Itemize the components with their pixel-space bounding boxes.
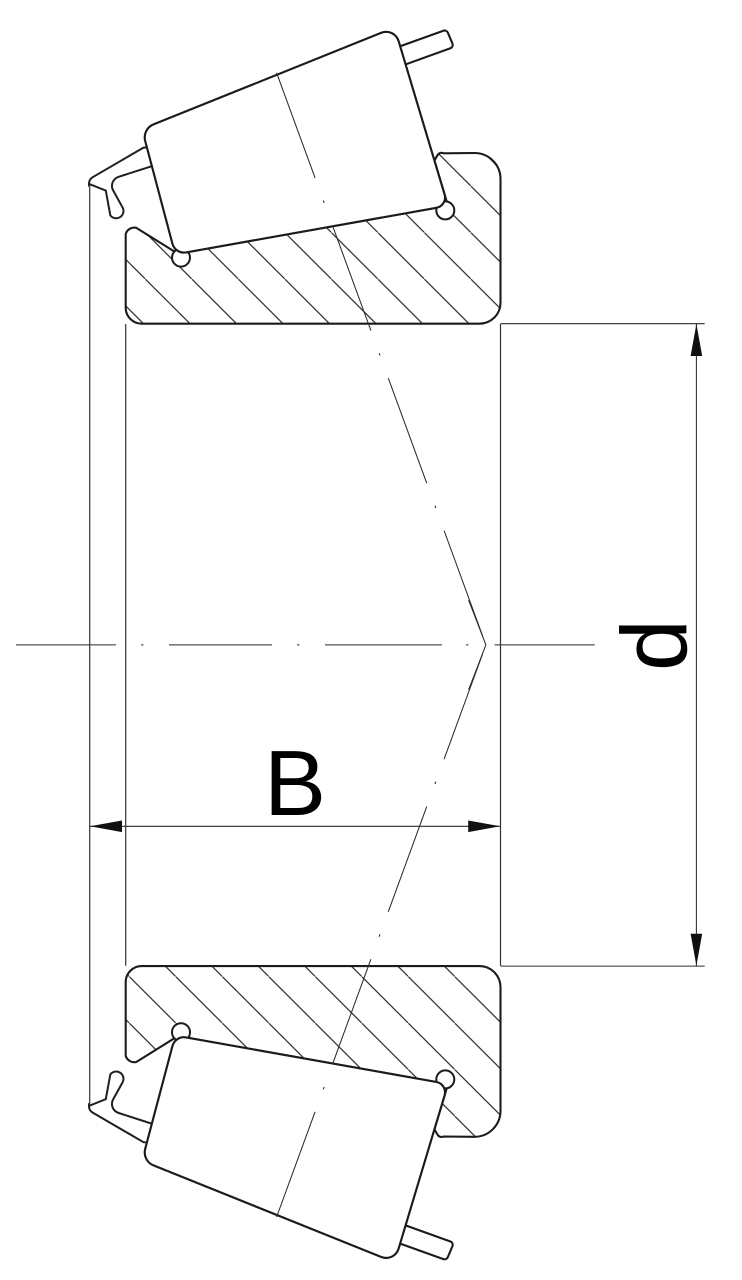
svg-text:d: d: [603, 619, 707, 671]
svg-text:B: B: [264, 731, 326, 835]
